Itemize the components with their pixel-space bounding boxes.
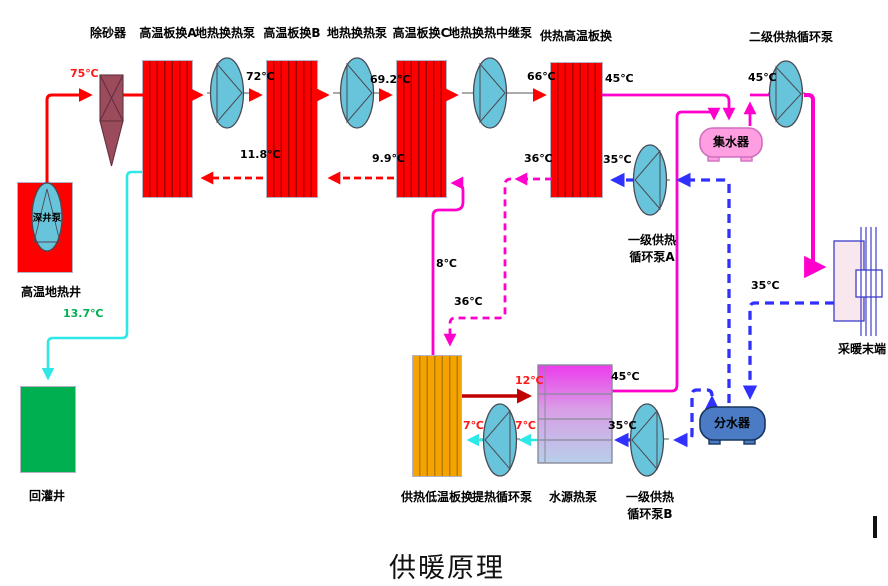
temp-11-8: 11.8℃	[240, 148, 280, 161]
deep-well-pump-label: 深井泵	[33, 210, 62, 227]
temp-35-terminal: 35℃	[751, 279, 780, 292]
geo-well-label: 高温地热井	[21, 284, 81, 301]
distributor-label: 分水器	[714, 415, 750, 432]
primary-pump-a-line2: 循环泵A	[629, 250, 674, 264]
relay-pump-symbol	[474, 58, 507, 128]
sand-remover-label: 除砂器	[90, 25, 126, 42]
temp-35-hx: 35℃	[603, 153, 632, 166]
heating-principle-diagram: 除砂器 高温板换A 地热换热泵 高温板换B 地热换热泵 高温板换C 地热换热中继…	[0, 0, 888, 586]
temp-75: 75℃	[70, 67, 99, 80]
hx-c-label: 高温板换C	[393, 25, 450, 42]
sand-remover-symbol	[100, 75, 123, 166]
temp-45-pump: 45℃	[748, 71, 777, 84]
extract-pump-label: 提热循环泵	[472, 489, 532, 506]
reinjection-well-label: 回灌井	[29, 488, 65, 505]
cursor-bar	[873, 516, 877, 538]
temp-8: 8℃	[436, 257, 457, 270]
wshp-label: 水源热泵	[549, 489, 597, 506]
pump-symbols	[32, 58, 803, 476]
return-dashed-lines	[613, 180, 834, 440]
primary-pump-b-line1: 一级供热	[626, 490, 674, 504]
temp-69-2: 69.2℃	[370, 73, 410, 86]
temp-72: 72℃	[246, 70, 275, 83]
temp-7-b: 7℃	[515, 419, 536, 432]
terminal-symbol	[834, 227, 882, 336]
temp-35-wshp: 35℃	[608, 419, 637, 432]
temp-12: 12℃	[515, 374, 544, 387]
temp-13-7: 13.7℃	[63, 307, 103, 320]
extract-pump-symbol	[484, 404, 517, 476]
temp-9-9: 9.9℃	[372, 152, 405, 165]
temp-36-upper: 36℃	[524, 152, 553, 165]
primary-pump-a-line1: 一级供热	[628, 233, 676, 247]
primary-pump-b-symbol	[631, 404, 664, 476]
wshp-symbol	[538, 365, 612, 463]
geo-pump-2-symbol	[341, 58, 374, 128]
primary-pump-a-label: 一级供热循环泵A	[628, 232, 676, 266]
diagram-title: 供暖原理	[389, 546, 505, 585]
temp-45-wshp: 45℃	[611, 370, 640, 383]
secondary-pump-label: 二级供热循环泵	[749, 29, 833, 46]
geo-pump-1-symbol	[211, 58, 244, 128]
primary-pump-b-label: 一级供热循环泵B	[626, 489, 674, 523]
temp-7-a: 7℃	[463, 419, 484, 432]
geo-pump-2-label: 地热换热泵	[327, 25, 387, 42]
temp-45-hx: 45℃	[605, 72, 634, 85]
relay-pump-label: 地热换热中继泵	[448, 25, 532, 42]
primary-pump-a-symbol	[634, 145, 667, 215]
temp-66: 66℃	[527, 70, 556, 83]
temp-36-lower: 36℃	[454, 295, 483, 308]
hx-supply-low-label: 供热低温板换	[401, 489, 473, 506]
hx-supply-high-label: 供热高温板换	[540, 28, 612, 45]
supply-dashed-lines	[450, 179, 552, 344]
terminal-label: 采暖末端	[838, 341, 886, 358]
collector-label: 集水器	[713, 134, 749, 151]
primary-pump-b-line2: 循环泵B	[627, 507, 672, 521]
geo-pump-1-label: 地热换热泵	[195, 25, 255, 42]
hx-a-label: 高温板换A	[139, 25, 196, 42]
hx-b-label: 高温板换B	[263, 25, 320, 42]
